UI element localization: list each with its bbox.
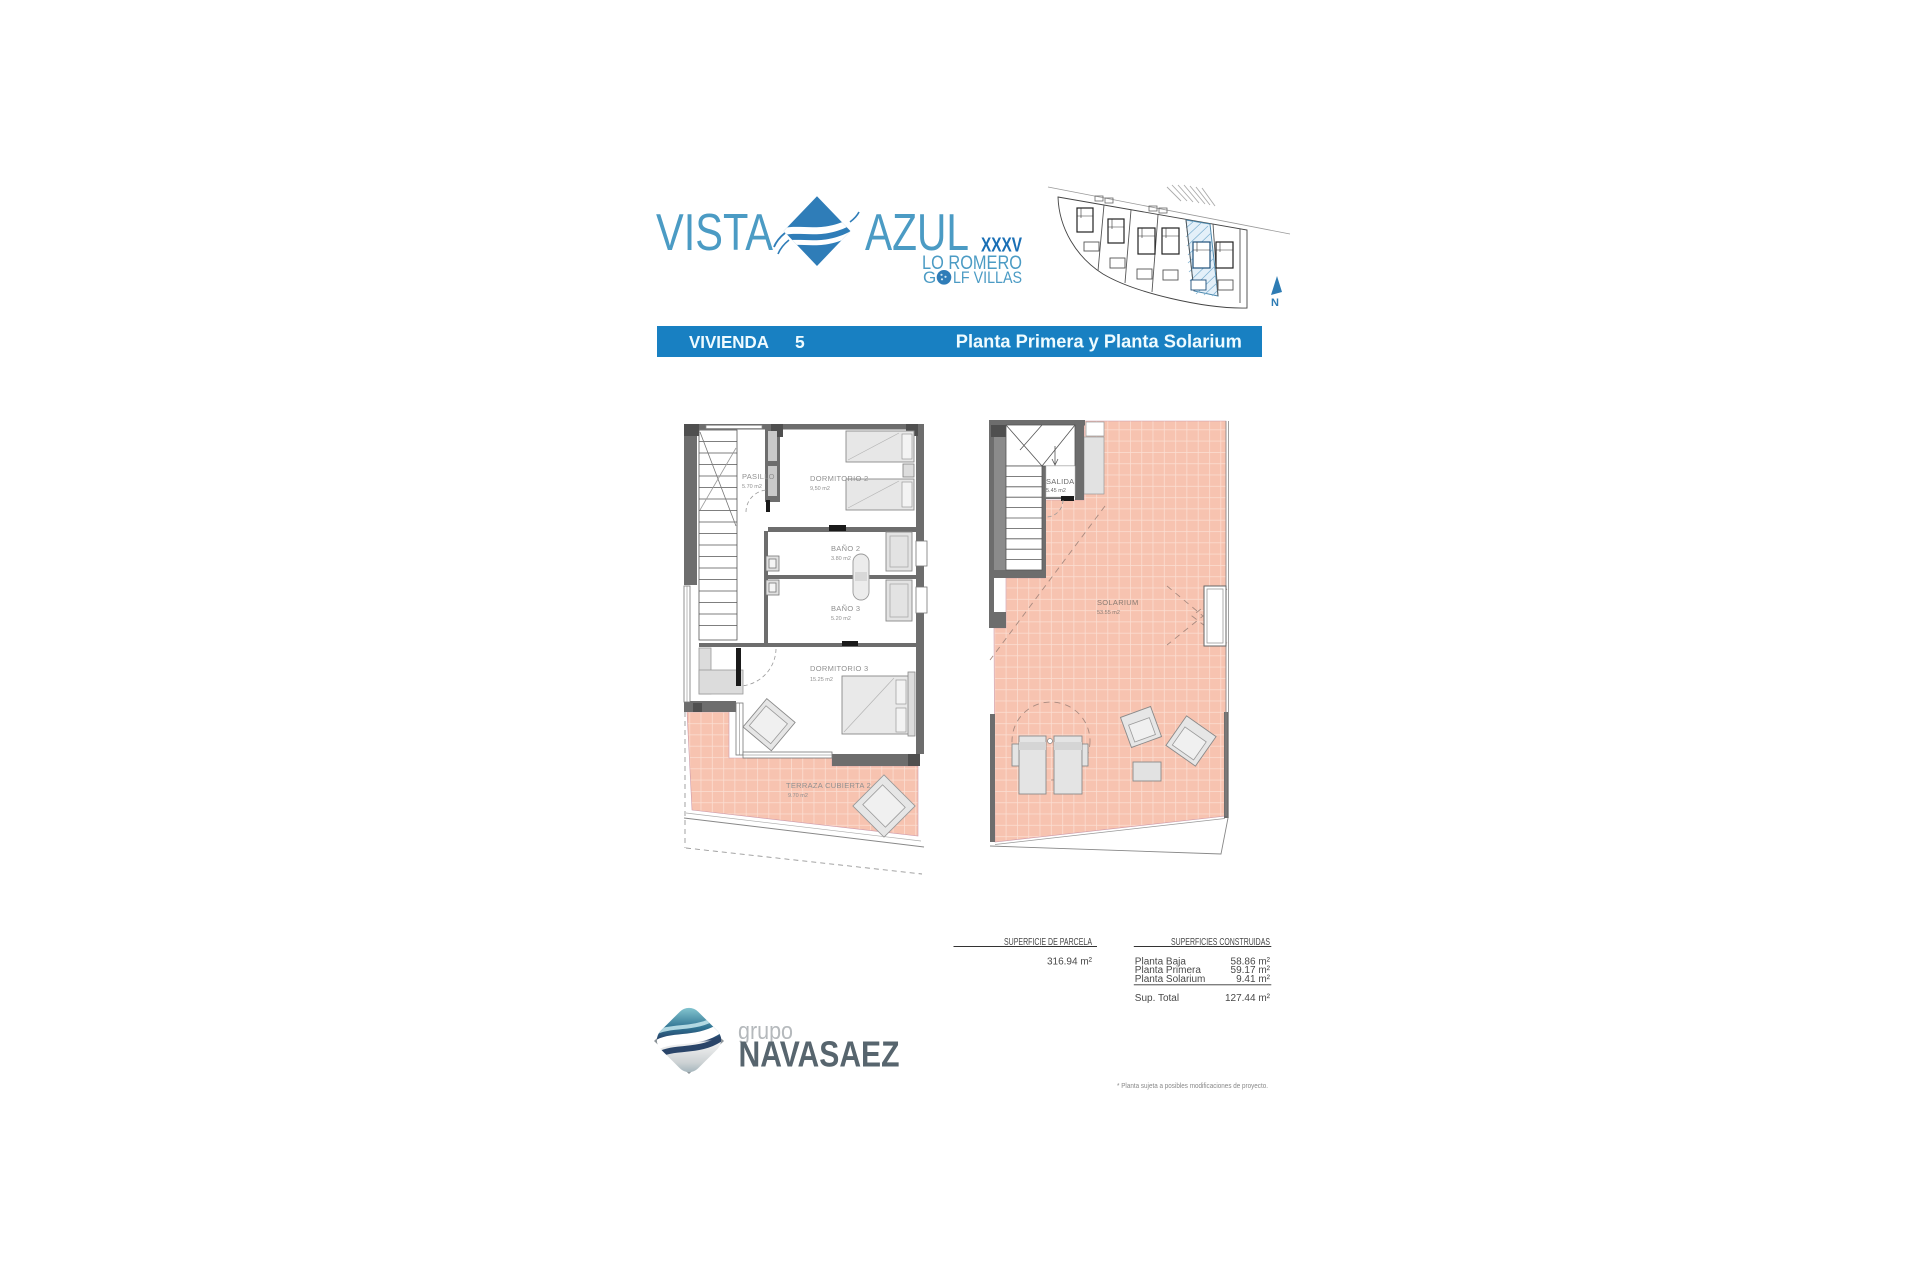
svg-text:SALIDA: SALIDA: [1046, 477, 1074, 486]
svg-text:NAVASAEZ: NAVASAEZ: [739, 1033, 900, 1074]
svg-text:* Planta sujeta a posibles mod: * Planta sujeta a posibles modificacione…: [1117, 1081, 1268, 1090]
svg-text:Planta Primera y Planta Solari: Planta Primera y Planta Solarium: [956, 331, 1242, 352]
svg-text:Sup. Total: Sup. Total: [1135, 993, 1179, 1004]
svg-text:3.80 m2: 3.80 m2: [831, 556, 851, 562]
svg-text:316.94 m²: 316.94 m²: [1047, 957, 1093, 968]
svg-text:9.41 m²: 9.41 m²: [1236, 974, 1271, 985]
svg-text:SOLARIUM: SOLARIUM: [1097, 598, 1139, 607]
svg-text:BAÑO 3: BAÑO 3: [831, 604, 860, 613]
svg-text:5: 5: [795, 332, 805, 352]
svg-text:TERRAZA CUBIERTA 2: TERRAZA CUBIERTA 2: [786, 781, 871, 790]
svg-text:53.55 m2: 53.55 m2: [1097, 610, 1120, 616]
svg-text:SUPERFICIES CONSTRUIDAS: SUPERFICIES CONSTRUIDAS: [1171, 937, 1270, 948]
svg-text:VIVIENDA: VIVIENDA: [689, 332, 769, 352]
svg-text:5.45 m2: 5.45 m2: [1046, 488, 1066, 494]
svg-text:5.70 m2: 5.70 m2: [742, 484, 762, 490]
svg-text:N: N: [1271, 297, 1279, 309]
svg-text:LF VILLAS: LF VILLAS: [953, 268, 1022, 287]
svg-text:G: G: [923, 268, 936, 287]
svg-text:BAÑO 2: BAÑO 2: [831, 544, 860, 553]
svg-text:DORMITORIO 3: DORMITORIO 3: [810, 664, 868, 673]
svg-text:Planta Solarium: Planta Solarium: [1135, 974, 1206, 985]
svg-text:5.20 m2: 5.20 m2: [831, 616, 851, 622]
svg-text:9.70 m2: 9.70 m2: [788, 793, 808, 799]
svg-text:9,50 m2: 9,50 m2: [810, 486, 830, 492]
svg-text:SUPERFICIE DE PARCELA: SUPERFICIE DE PARCELA: [1004, 937, 1092, 948]
svg-text:DORMITORIO 2: DORMITORIO 2: [810, 474, 868, 483]
svg-text:PASILLO: PASILLO: [742, 472, 775, 481]
svg-text:127.44 m²: 127.44 m²: [1225, 993, 1271, 1004]
svg-text:15.25 m2: 15.25 m2: [810, 677, 833, 683]
svg-text:VISTA: VISTA: [656, 204, 773, 262]
